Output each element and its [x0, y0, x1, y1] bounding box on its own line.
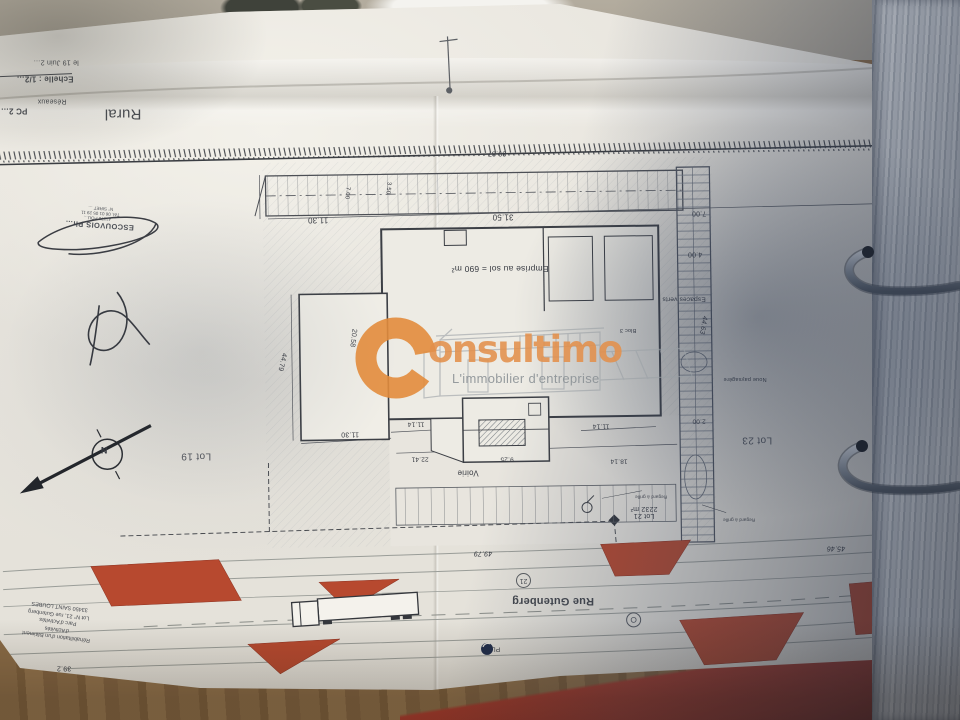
binder-ring-bottom-icon	[843, 440, 958, 490]
photo-site-plan-in-binder: le 19 Juin 2… Echelle : 1/2… Réseaux PC …	[0, 0, 960, 720]
binder-ring-top-icon	[849, 246, 958, 291]
binder-rings	[0, 0, 960, 720]
